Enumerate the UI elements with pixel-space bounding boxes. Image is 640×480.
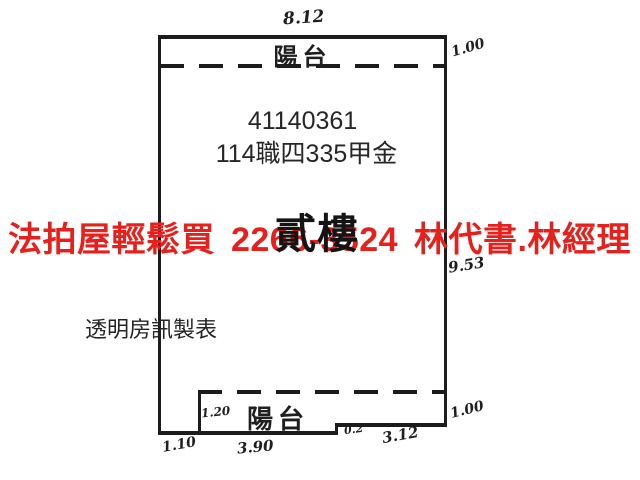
dimension-top-balcony-depth: 1.00: [449, 36, 486, 61]
dimension-bottom-left: 1.10: [161, 434, 197, 456]
dimension-bottom-right-depth: 1.00: [449, 398, 486, 422]
dimension-bottom-step: 0.2: [343, 422, 364, 438]
floor-label: 貳樓: [275, 200, 359, 260]
case-number: 41140361: [158, 107, 447, 136]
dimension-top-width: 8.12: [282, 7, 325, 30]
bottom-balcony-label: 陽台: [247, 399, 309, 436]
bottom-balcony-divider: [198, 390, 444, 394]
case-name: 114職四335甲金: [162, 134, 451, 170]
top-balcony-label: 陽台: [158, 37, 447, 72]
floorplan-page: 陽台 41140361 114職四335甲金 法拍屋輕鬆買 2266-3524 …: [0, 0, 640, 480]
maker-credit: 透明房訊製表: [85, 312, 217, 344]
dimension-bottom-balcony-depth: 1.20: [200, 404, 231, 421]
dimension-bottom-mid: 3.90: [236, 436, 274, 457]
